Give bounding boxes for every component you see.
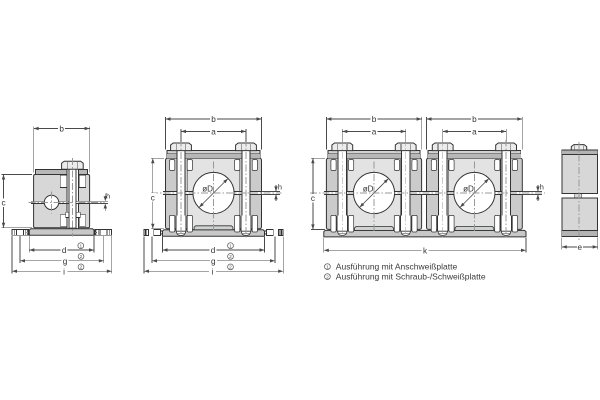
- svg-text:h: h: [540, 183, 544, 192]
- svg-text:b: b: [472, 115, 477, 124]
- svg-text:Ausführung mit Schraub-/Schwei: Ausführung mit Schraub-/Schweißplatte: [336, 272, 486, 282]
- svg-text:2: 2: [326, 274, 329, 280]
- svg-text:Ausführung mit Anschweißplatte: Ausführung mit Anschweißplatte: [336, 262, 458, 272]
- svg-text:g: g: [211, 257, 216, 266]
- svg-text:e: e: [578, 243, 583, 252]
- svg-text:g: g: [63, 257, 68, 266]
- svg-text:c: c: [1, 199, 5, 208]
- svg-text:øD: øD: [363, 185, 374, 194]
- svg-text:d: d: [211, 246, 216, 255]
- svg-text:i: i: [212, 267, 214, 276]
- svg-text:1: 1: [229, 244, 232, 250]
- svg-text:i: i: [63, 267, 65, 276]
- svg-text:øD: øD: [202, 185, 213, 194]
- svg-text:h: h: [106, 192, 110, 201]
- svg-text:1: 1: [79, 244, 82, 250]
- svg-text:c: c: [151, 194, 155, 203]
- svg-text:2: 2: [229, 265, 232, 271]
- svg-text:a: a: [372, 128, 377, 137]
- svg-text:c: c: [311, 194, 315, 203]
- svg-text:b: b: [372, 115, 377, 124]
- svg-text:a: a: [472, 128, 477, 137]
- svg-text:2: 2: [229, 254, 232, 260]
- svg-text:øD: øD: [463, 185, 474, 194]
- svg-text:a: a: [211, 128, 216, 137]
- svg-text:2: 2: [80, 254, 83, 260]
- svg-text:d: d: [62, 246, 67, 255]
- svg-text:b: b: [59, 125, 64, 134]
- svg-text:1: 1: [326, 264, 329, 270]
- svg-text:2: 2: [80, 265, 83, 271]
- svg-text:h: h: [278, 183, 282, 192]
- svg-text:b: b: [211, 115, 216, 124]
